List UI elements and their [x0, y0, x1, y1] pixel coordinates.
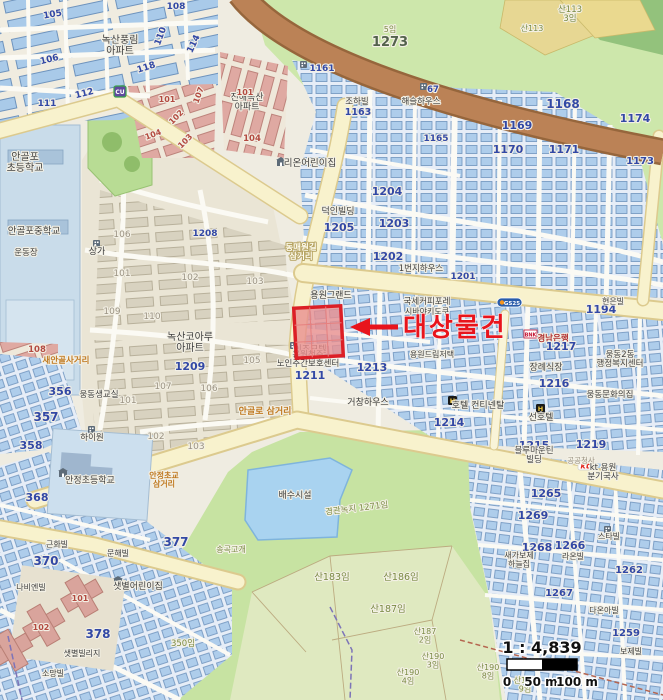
- svg-text:BNK: BNK: [525, 333, 538, 339]
- map-label: 리온어린이집: [284, 157, 336, 169]
- map-label: 안정초교삼거리: [149, 470, 179, 489]
- map-label: 1173: [626, 156, 654, 167]
- map-label: 106: [113, 230, 130, 240]
- map-label: 안골포초등학교: [7, 151, 44, 174]
- scale-ratio: 1 : 4,839: [502, 638, 581, 657]
- map-label: 근화빌: [46, 539, 68, 549]
- map-label: 101: [159, 95, 176, 104]
- map-label: 국세커피포레: [404, 297, 451, 307]
- map-label: 안골포중학교: [8, 226, 61, 237]
- map-label: 산183임: [314, 571, 350, 583]
- map-label: 101: [72, 594, 89, 603]
- map-label: 357: [33, 410, 58, 424]
- map-label: 1208: [192, 229, 217, 239]
- map-label: 358: [20, 439, 43, 452]
- map-label: 67: [427, 85, 439, 95]
- map-label: 샛별어린이집: [113, 580, 163, 592]
- map-label: 1265: [531, 487, 562, 500]
- map-label: 1273: [372, 35, 408, 50]
- map-label: 1217: [546, 340, 577, 353]
- map-label: 선호텔: [529, 411, 554, 423]
- map-label: 용원그랜드: [310, 290, 351, 301]
- map-label: 웅동문화의집: [587, 389, 634, 400]
- map-label: 1201: [450, 272, 475, 282]
- map-label: 샛별빌리지: [64, 648, 101, 658]
- map-label: 1219: [576, 438, 607, 451]
- map-label: 웅동생교실: [79, 389, 118, 400]
- map-label: 1174: [620, 112, 651, 125]
- map-label: 문해빌: [107, 548, 129, 558]
- svg-text:H: H: [538, 405, 543, 413]
- map-label: 1161: [309, 64, 334, 74]
- map-label: 해슬하우스: [401, 96, 440, 107]
- scale-tick-50: 50 m: [524, 675, 557, 689]
- map-label: 370: [33, 554, 58, 568]
- target-label: 대상물건: [403, 313, 507, 343]
- bld-icon: [88, 426, 95, 433]
- map-label: 1216: [539, 377, 570, 390]
- map-label: 102: [147, 432, 164, 442]
- map-label: 378: [85, 627, 110, 641]
- map-label: 덕인빌딩: [321, 206, 354, 217]
- map-label: 송곡고개: [216, 544, 245, 554]
- map-label: 101: [113, 269, 130, 279]
- bld-icon: [420, 83, 427, 90]
- map-label: 하이원: [80, 432, 103, 443]
- map-label: 101: [237, 88, 254, 97]
- map-label: 녹산풍림아파트: [102, 34, 139, 57]
- map-label: 1211: [295, 369, 326, 382]
- map-label: 현은빌: [602, 296, 624, 306]
- bld-icon: [300, 61, 307, 68]
- map-label: 102: [181, 273, 198, 283]
- map-label: 1204: [372, 185, 403, 198]
- map-label: 1269: [518, 509, 549, 522]
- map-label: 1213: [357, 361, 388, 374]
- map-label: 호텔 컨티넨탈: [452, 399, 505, 411]
- map-label: 다온아빌: [589, 605, 618, 615]
- map-label: 108: [167, 2, 186, 12]
- map-label: 1번지하우스: [399, 263, 444, 274]
- map-label: 장례식장: [529, 362, 562, 373]
- svg-text:CU: CU: [115, 89, 124, 96]
- scale-tick-100: 100 m: [556, 675, 598, 689]
- map-canvas[interactable]: CUGS25ktBNKHH 108105녹산풍림아파트1101141061181…: [0, 0, 663, 700]
- map-label: 105: [243, 356, 260, 366]
- map-label: 377: [163, 535, 188, 549]
- scale-tick-0: 0: [503, 675, 511, 689]
- map-label: 102: [33, 623, 50, 632]
- map-label: 산187임: [370, 603, 406, 615]
- gs25-icon: GS25: [497, 298, 522, 307]
- map-label: kt 용원분기국사: [587, 463, 618, 482]
- map-label: 안정초등학교: [65, 475, 115, 486]
- cu-icon: CU: [114, 86, 126, 97]
- map-label: 107: [154, 382, 171, 392]
- map-label: 1165: [423, 134, 448, 144]
- map-label: 1205: [324, 221, 355, 234]
- map-label: 1259: [612, 628, 640, 639]
- map-label: 368: [26, 491, 49, 504]
- map-label: 1202: [373, 250, 404, 263]
- map-label: 라온빌: [562, 551, 584, 561]
- map-label: 나비엔빌: [16, 582, 45, 592]
- map-label: 1170: [493, 143, 524, 156]
- map-label: 산186임: [383, 571, 419, 583]
- hotel-icon: H: [536, 404, 545, 413]
- map-label: 1214: [434, 416, 465, 429]
- map-label: 스타빌: [598, 531, 620, 541]
- bld-icon: [93, 240, 100, 247]
- map-label: 운동장: [14, 247, 38, 258]
- map-label: 350임: [171, 638, 195, 649]
- map-label: 104: [243, 134, 261, 144]
- map-label: 103: [246, 277, 263, 287]
- map-label: 110: [143, 312, 160, 322]
- map-label: 보제빌: [620, 646, 642, 656]
- map-label: 새가보제하늘집: [504, 551, 533, 569]
- map-label: 조하빌: [345, 96, 368, 107]
- map-label: 1168: [546, 97, 579, 111]
- map-label: 1262: [615, 565, 643, 576]
- map-label: 109: [103, 307, 120, 317]
- map-label: 산113: [521, 23, 544, 33]
- map-label: 1163: [345, 107, 371, 118]
- map-label: 101: [119, 396, 136, 406]
- map-label: 1266: [555, 539, 586, 552]
- target-parcel[interactable]: [294, 306, 344, 358]
- map-label: 1267: [545, 588, 573, 599]
- map-label: 안골로 삼거리: [239, 405, 292, 417]
- map-label: 108: [28, 345, 46, 355]
- map-label: 1209: [175, 360, 206, 373]
- map-label: 소망빌: [42, 668, 64, 678]
- map-label: 용원드림저택: [410, 349, 454, 359]
- map-label: 새안골사거리: [43, 355, 90, 366]
- map-label: 상가: [89, 246, 106, 257]
- map-label: 거창하우스: [347, 397, 388, 408]
- map-label: 1169: [502, 119, 533, 132]
- map-label: 111: [38, 99, 57, 109]
- map-label: 동매원길삼거리: [285, 242, 316, 262]
- map-label: 1203: [379, 217, 410, 230]
- map-label: 103: [187, 442, 204, 452]
- svg-text:GS25: GS25: [504, 301, 520, 307]
- map-label: 106: [200, 384, 217, 394]
- map-label: 356: [49, 385, 72, 398]
- map-label: 1171: [549, 143, 580, 156]
- map-label: 5임: [384, 25, 396, 34]
- map-label: 배수시설: [278, 490, 311, 501]
- bnk-icon: BNK: [524, 330, 538, 339]
